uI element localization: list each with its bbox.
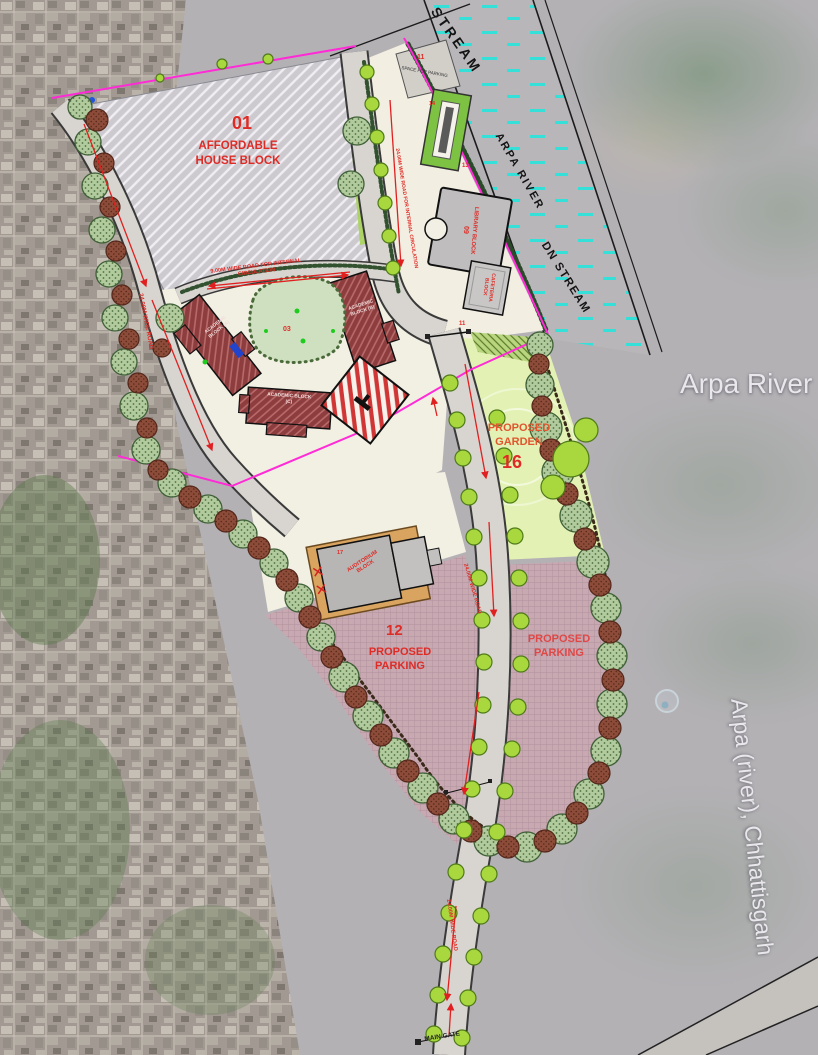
map-road-bottom-right bbox=[638, 957, 818, 1055]
space-for-parking-number: 11 bbox=[417, 54, 424, 61]
parking-west-label: PROPOSED PARKING bbox=[368, 645, 432, 674]
plaza-number: 13 bbox=[462, 163, 469, 169]
courtyard-number: 03 bbox=[283, 326, 291, 333]
parking-east-label: PROPOSED PARKING bbox=[526, 632, 592, 661]
parking-west-number: 12 bbox=[386, 622, 403, 639]
junction-number: 11 bbox=[459, 321, 465, 327]
garden-number: 16 bbox=[502, 452, 522, 473]
site-plan-map: STREAM ARPA RIVER DN STREAM 11 SPACE FOR… bbox=[0, 0, 818, 1055]
garden-label: PROPOSED GARDEN bbox=[484, 422, 554, 450]
pool-number: 14 bbox=[429, 101, 435, 107]
courtyard bbox=[250, 277, 345, 363]
auditorium-number: 17 bbox=[337, 550, 343, 556]
affordable-number: 01 bbox=[219, 113, 265, 134]
plan-graphics bbox=[0, 0, 818, 1055]
affordable-label: AFFORDABLE HOUSE BLOCK bbox=[192, 139, 284, 169]
map-marker bbox=[656, 690, 678, 712]
map-river-name: Arpa River bbox=[680, 368, 812, 400]
